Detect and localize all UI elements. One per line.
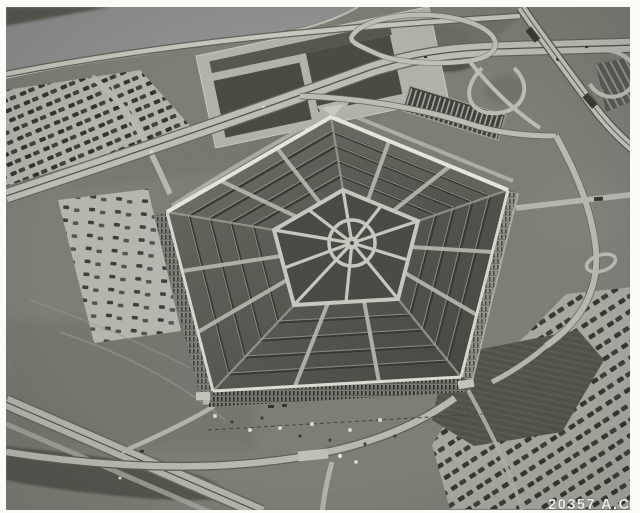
vignette (6, 7, 630, 510)
aerial-photo: 20357 A.C. (6, 7, 630, 510)
photo-frame: 20357 A.C. (0, 0, 640, 513)
photo-id-label: 20357 A.C. (548, 497, 630, 510)
